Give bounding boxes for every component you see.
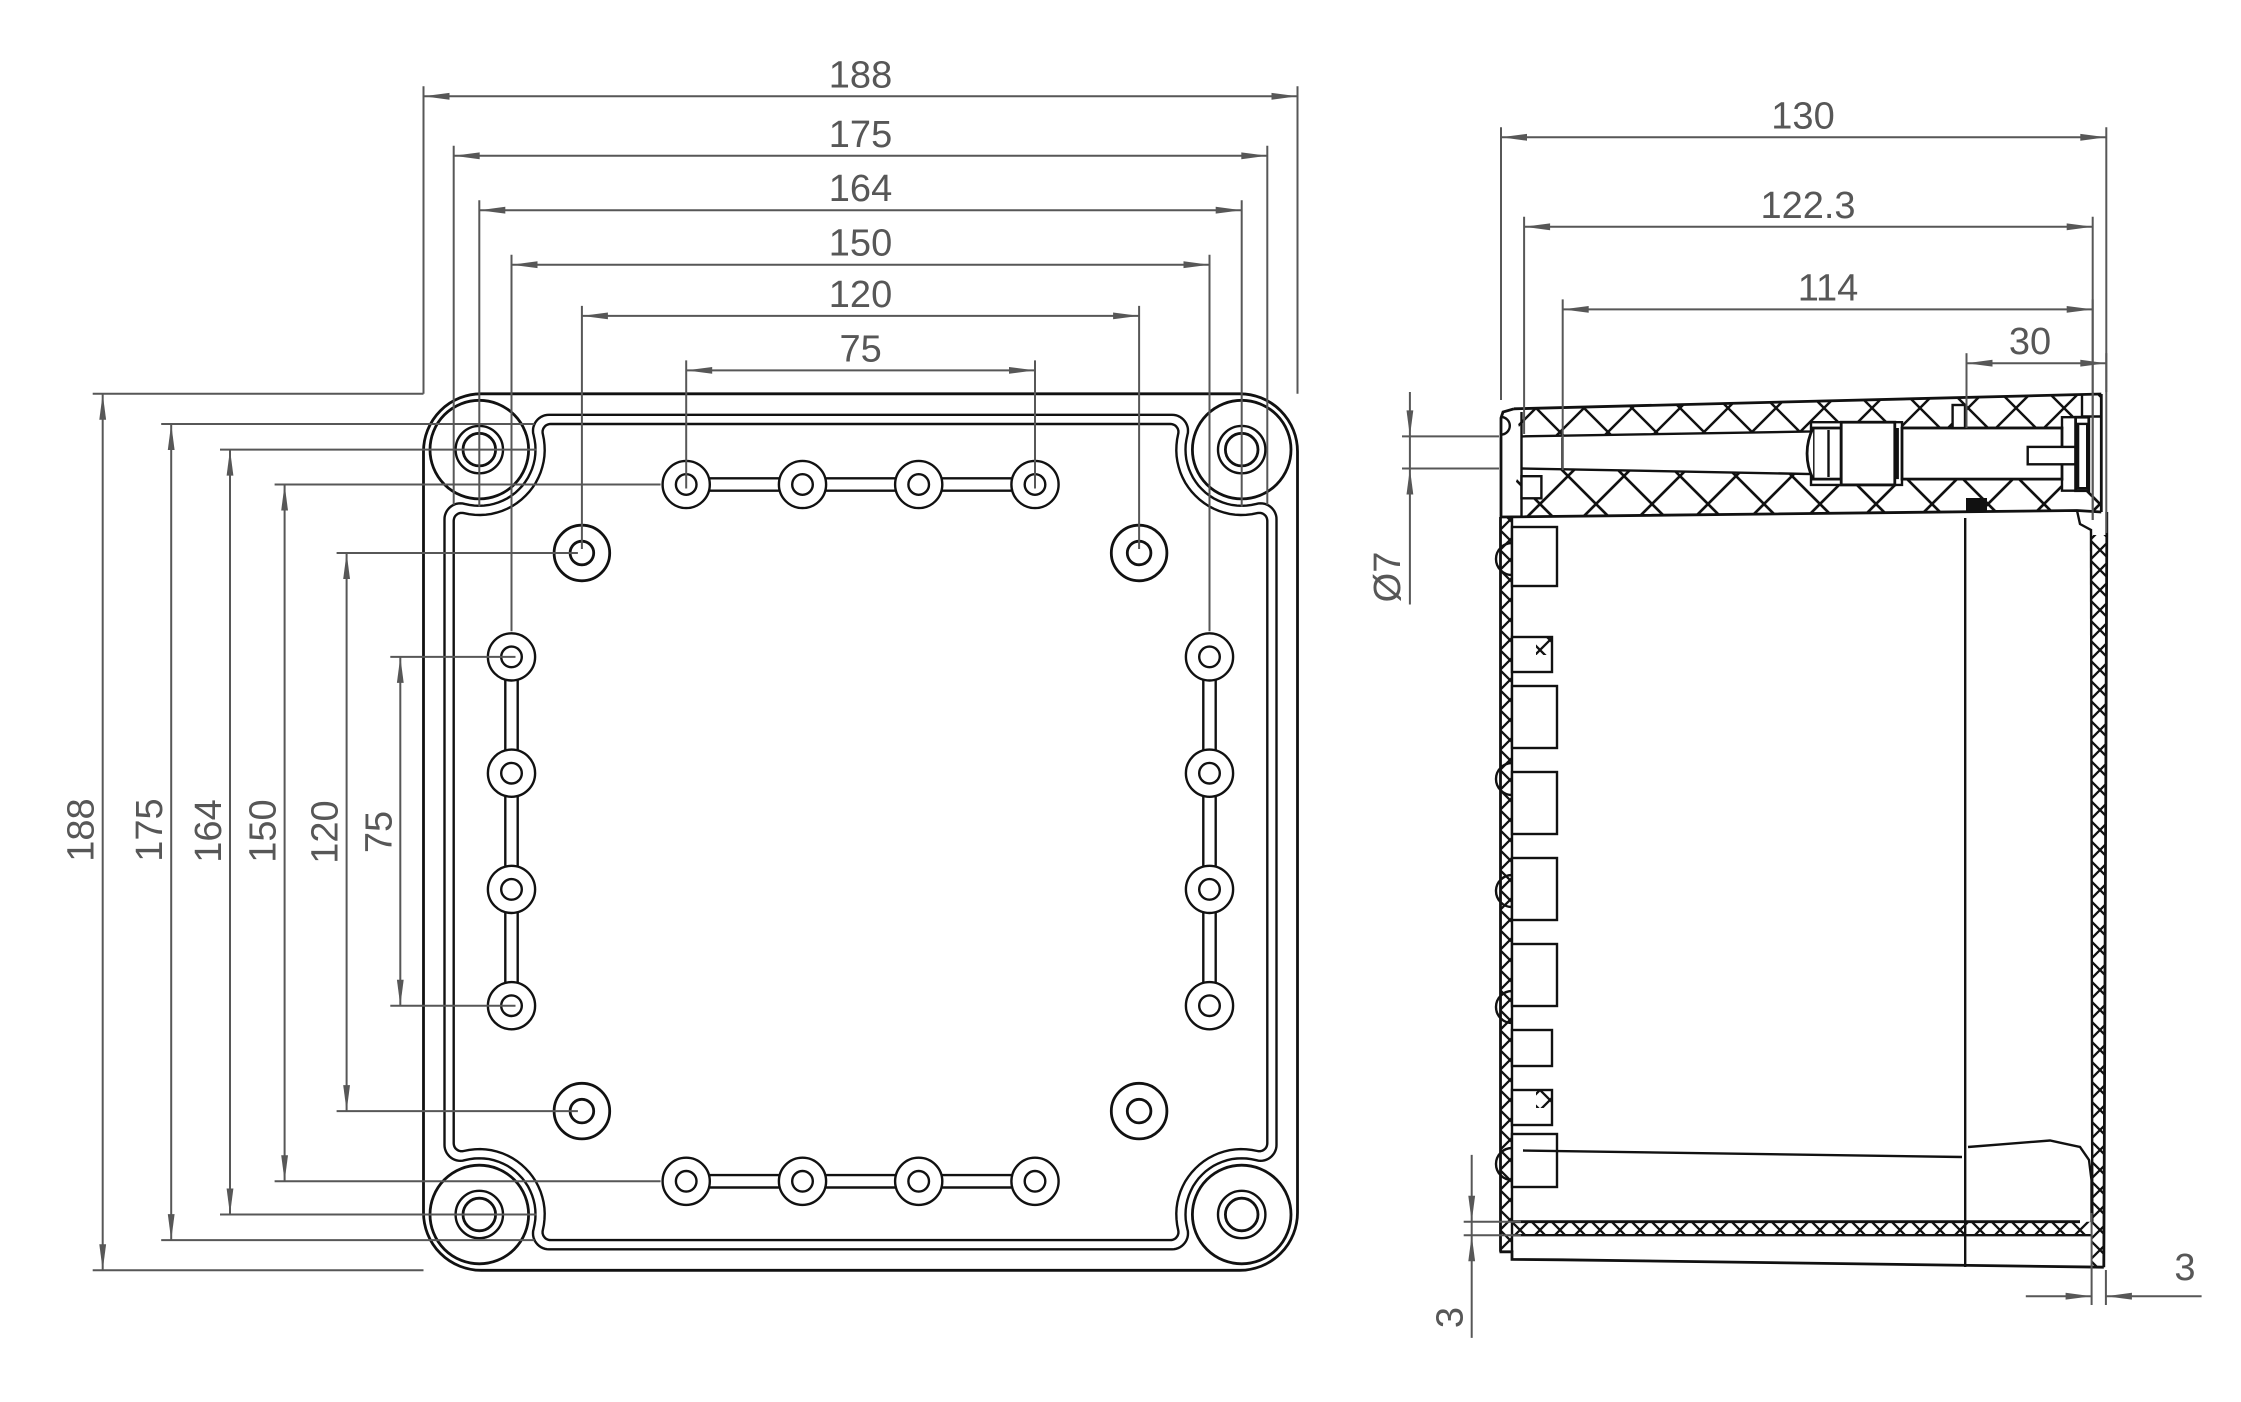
svg-text:75: 75: [839, 328, 881, 370]
svg-text:122.3: 122.3: [1760, 185, 1855, 227]
svg-text:114: 114: [1798, 267, 1859, 309]
svg-text:188: 188: [829, 54, 892, 96]
svg-text:175: 175: [129, 798, 171, 861]
svg-text:188: 188: [61, 798, 103, 861]
svg-text:150: 150: [829, 223, 892, 265]
svg-text:120: 120: [829, 274, 892, 316]
svg-text:3: 3: [2174, 1247, 2195, 1289]
svg-text:75: 75: [358, 811, 400, 853]
svg-text:3: 3: [1430, 1307, 1472, 1328]
svg-text:164: 164: [829, 168, 892, 210]
svg-text:130: 130: [1771, 95, 1834, 137]
svg-text:164: 164: [188, 799, 230, 862]
svg-text:30: 30: [2009, 321, 2051, 363]
svg-text:Ø7: Ø7: [1367, 552, 1409, 603]
svg-text:175: 175: [829, 114, 892, 156]
svg-text:120: 120: [305, 800, 347, 863]
svg-text:150: 150: [243, 799, 285, 862]
